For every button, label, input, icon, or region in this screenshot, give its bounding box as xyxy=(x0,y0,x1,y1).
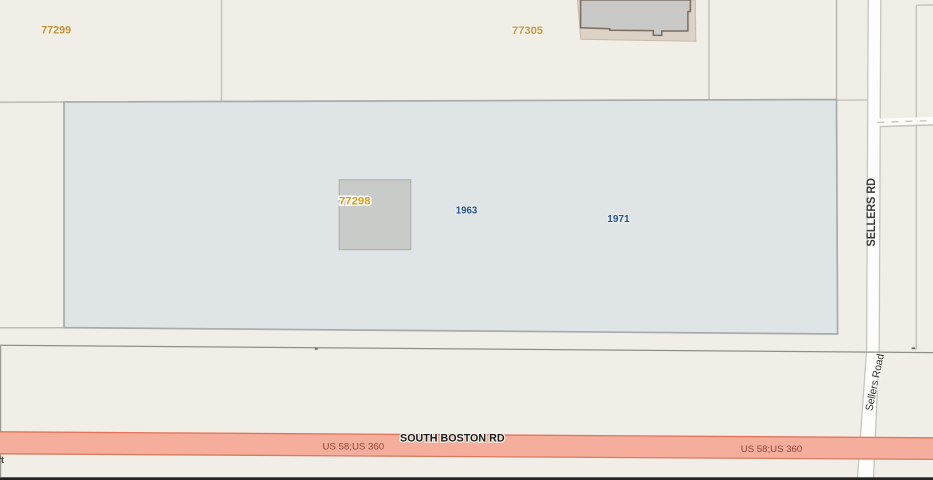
svg-text:US 58;US 360: US 58;US 360 xyxy=(323,441,385,452)
svg-text:1963: 1963 xyxy=(456,204,478,216)
svg-text:SOUTH BOSTON RD: SOUTH BOSTON RD xyxy=(400,432,505,444)
svg-text:77305: 77305 xyxy=(512,25,543,37)
svg-text:US 58;US 360: US 58;US 360 xyxy=(741,444,803,455)
svg-text:1971: 1971 xyxy=(607,213,630,225)
svg-text:ft: ft xyxy=(0,455,4,465)
svg-text:77298: 77298 xyxy=(339,195,371,207)
svg-text:77299: 77299 xyxy=(41,25,71,37)
svg-text:SELLERS RD: SELLERS RD xyxy=(864,178,878,247)
